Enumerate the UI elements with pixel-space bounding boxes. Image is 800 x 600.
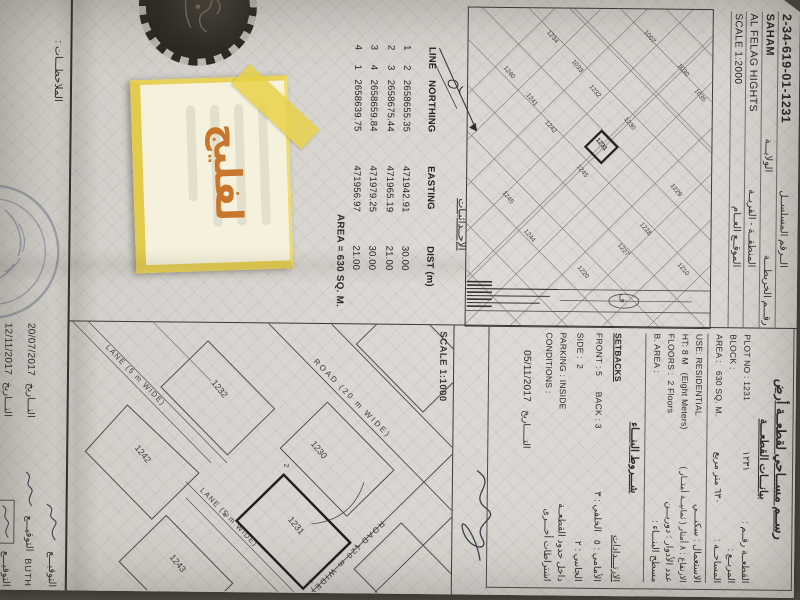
panel-subtitle-ar: بيانـــات القطعـــة bbox=[756, 335, 772, 584]
coord-cell: 471965.19 bbox=[380, 166, 397, 242]
panel-divider bbox=[705, 334, 709, 583]
coord-cell: 2658675.44 bbox=[381, 80, 398, 162]
drawing-scale: SCALE 1:1000 bbox=[437, 331, 449, 402]
use-en: USE: RESIDENTIAL bbox=[694, 334, 705, 416]
plot-no-en: PLOT NO : 1231 bbox=[742, 334, 753, 401]
plan-plot-number: 1230 bbox=[622, 116, 637, 132]
date-label-ar: التـــاريخ bbox=[25, 383, 36, 418]
side-ar: الجانبي : ٢ bbox=[572, 541, 583, 582]
plan-plot-number: 1232 bbox=[588, 84, 603, 100]
row-floors: FLOORS : 2 Floors عدد الأدوار : دوريـــن bbox=[663, 334, 677, 583]
plan-plot-number: 1007 bbox=[642, 29, 657, 45]
road-label: ROAD (20 m WIDE) bbox=[308, 519, 386, 593]
area-ar-label: المساحــة : bbox=[711, 539, 722, 583]
signature-date: 20/07/2017 bbox=[25, 323, 37, 376]
plan-plot-number: 1035 bbox=[692, 88, 707, 104]
plot-drawing-box: 1 2 3 4 SCALE 1:1000 ROAD (20 m WIDE) RO… bbox=[66, 321, 455, 594]
signature-scribble bbox=[0, 503, 13, 541]
stamp-box bbox=[0, 500, 15, 544]
note-showthrough-bar bbox=[186, 105, 198, 201]
vertex-number: 2 bbox=[282, 464, 289, 468]
coord-cell: 4 bbox=[365, 59, 382, 75]
building-area-ar: مسطح البنـــاء : bbox=[649, 520, 661, 583]
seal-calligraphy bbox=[138, 0, 257, 66]
floors-ar: عدد الأدوار : دوريـــن bbox=[663, 501, 675, 582]
plan-plot-number: 1220 bbox=[576, 265, 591, 281]
drawing-plot-number: 1232 bbox=[209, 378, 229, 400]
plan-plot-number: 1228 bbox=[638, 221, 653, 237]
plan-plot-number: 1241 bbox=[524, 92, 539, 108]
plan-plot-number: 1245 bbox=[500, 190, 515, 206]
coord-cell: 2 bbox=[382, 40, 399, 56]
plan-plot-number: 1229 bbox=[668, 182, 683, 198]
plan-scale-value: SCALE 1:2000 bbox=[732, 13, 744, 84]
panel-title-ar: رســم مســاحي لقطعــة أرض bbox=[771, 335, 790, 584]
side-en: SIDE : 2 bbox=[575, 333, 585, 369]
row-height: HT: 8 M (Eight Meters) الارتفاع : ٨ أمتا… bbox=[677, 334, 691, 583]
col-northing: NORTHING bbox=[422, 80, 439, 162]
row-front-back: FRONT : 5 BACK : 3 الأمامي : ٥ الخلفي : … bbox=[591, 333, 605, 582]
conditions-ar: اشتراطات أخـــرى bbox=[541, 508, 553, 581]
row-conditions: CONDITIONS : اشتراطات أخـــرى bbox=[541, 332, 555, 581]
general-location-label-ar: الموقــع العــام bbox=[730, 206, 742, 325]
block-ar: المربــع : bbox=[725, 548, 736, 583]
row-side: SIDE : 2 الجانبي : ٢ bbox=[572, 333, 586, 582]
sticky-note: لفليج bbox=[130, 75, 293, 273]
header-table: 2-34-619-01-1231 الــرقم المسلســل SAHAM… bbox=[728, 11, 796, 328]
plan-plot-number: 1033 bbox=[570, 58, 585, 74]
setbacks-en: SETBACKS bbox=[613, 333, 624, 382]
survey-date: 05/11/2017 bbox=[521, 350, 533, 402]
floors-en: FLOORS : 2 Floors bbox=[666, 334, 677, 414]
signature-row-2: 20/07/2017 التـــاريخ التوقيـــع BUTH bbox=[17, 323, 43, 587]
drawing-plot-number: 1230 bbox=[309, 439, 329, 461]
paper-crease bbox=[0, 248, 470, 284]
ministry-seal-icon bbox=[138, 0, 257, 66]
row-block: BLOCK : المربــع : bbox=[725, 334, 739, 583]
header-row-area: AL FELAG HIGHTS المنطقــة - القريــة bbox=[743, 11, 762, 327]
coord-cell: 2658659.84 bbox=[364, 79, 381, 161]
plan-plot-number: 1240 bbox=[502, 65, 517, 81]
plot-data-panel: رســم مســاحي لقطعــة أرض بيانـــات القط… bbox=[486, 326, 795, 591]
signature-row-3: 12/11/2017 التـــاريخ التوقيـــع bbox=[0, 323, 20, 587]
area-ar-value: ٦٣٠ متر مربع bbox=[712, 452, 724, 504]
row-plot-no: PLOT NO : 1231 ١٢٣١ القطعــة رقــم : bbox=[739, 334, 753, 583]
front-back-en: FRONT : 5 BACK : 3 bbox=[593, 333, 604, 429]
plot-no-ar-label: القطعــة رقــم : bbox=[739, 521, 751, 583]
serial-number: 2-34-619-01-1231 bbox=[779, 14, 794, 124]
lane-label: LANE (5 m WIDE) bbox=[104, 343, 168, 408]
wilaya-value: SAHAM bbox=[763, 14, 775, 56]
approval-signature bbox=[454, 464, 507, 577]
plot-no-ar-value: ١٢٣١ bbox=[740, 451, 751, 472]
location-plan-box: ف 1035 1030 1210 1007 1229 1228 1227 103… bbox=[465, 7, 714, 330]
plan-plot-number: 1227 bbox=[616, 242, 631, 258]
panel-divider bbox=[643, 333, 647, 582]
drawing-plot-number: 1243 bbox=[168, 552, 188, 574]
plan-plot-number: 1245 bbox=[575, 163, 590, 179]
coord-cell: 4 bbox=[349, 39, 366, 55]
conditions-en: CONDITIONS : bbox=[544, 332, 555, 393]
north-arrow-sketch bbox=[431, 42, 487, 143]
signature-scribble bbox=[20, 468, 38, 508]
height-ar: الارتفاع : ٨ أمتار ( ثمانيــة أمتــار ) bbox=[677, 466, 689, 583]
vertex-number: 4 bbox=[306, 580, 313, 584]
coord-cell: 471942.91 bbox=[396, 166, 413, 242]
row-use: USE: RESIDENTIAL الاستعمال : سكنـــي bbox=[691, 334, 705, 583]
row-date: 05/11/2017 التـــــاريخ bbox=[519, 332, 533, 581]
wilaya-label-ar: الولايـــة bbox=[762, 139, 773, 173]
road-circle-letter: ف bbox=[618, 293, 628, 302]
coord-cell: 471979.25 bbox=[363, 165, 380, 241]
document-photo: 2-34-619-01-1231 الــرقم المسلســل SAHAM… bbox=[0, 0, 800, 600]
paper-crease bbox=[55, 0, 99, 600]
block-en: BLOCK : bbox=[728, 334, 738, 369]
sticky-note-text: لفليج bbox=[203, 82, 252, 263]
lane-label: LANE (5 m WIDE) bbox=[198, 486, 260, 549]
parking-en: PARKING : INSIDE bbox=[558, 332, 569, 409]
signature-date: 12/11/2017 bbox=[2, 323, 14, 375]
surveyor-name-partial: BUTH bbox=[23, 558, 33, 587]
map-number-label-ar: رقـــم الخريطـــة bbox=[761, 255, 773, 326]
front-back-ar: الأمامي : ٥ الخلفي : ٣ bbox=[591, 491, 603, 582]
plot-drawing: 1 2 3 4 SCALE 1:1000 ROAD (20 m WIDE) RO… bbox=[67, 321, 454, 593]
plan-plot-number: 1234 bbox=[545, 29, 560, 45]
location-plan-map: ف 1035 1030 1210 1007 1229 1228 1227 103… bbox=[466, 8, 713, 329]
coord-cell: 471956.97 bbox=[347, 165, 364, 241]
row-area: AREA : 630 SQ. M. ٦٣٠ متر مربع المساحــة… bbox=[711, 334, 725, 583]
note-showthrough-bar bbox=[258, 103, 271, 225]
date-label-ar: التـــــاريخ bbox=[520, 410, 531, 449]
row-parking: PARKING : INSIDE داخل حدود القطعــة bbox=[555, 332, 569, 581]
signature-label-ar: التوقيـــع bbox=[23, 515, 34, 551]
serial-label-ar: الــرقم المسلســل bbox=[777, 190, 789, 326]
building-conditions-heading-ar: شـــروط البنـــاء bbox=[627, 333, 642, 582]
area-name-value: AL FELAG HIGHTS bbox=[747, 13, 760, 112]
drawing-plot-number: 1231 bbox=[286, 515, 306, 537]
use-ar: الاستعمال : سكنـــي bbox=[691, 504, 703, 583]
setbacks-ar: الارتـــدادات bbox=[610, 535, 621, 582]
header-row-serial: 2-34-619-01-1231 الــرقم المسلســل bbox=[775, 12, 796, 328]
coord-cell: 1 bbox=[398, 40, 415, 56]
building-area-en: B. AREA : bbox=[652, 333, 662, 373]
drawing-plot-number: 1242 bbox=[133, 443, 153, 465]
col-line: LINE bbox=[423, 40, 440, 76]
coord-cell: 2658655.35 bbox=[397, 80, 414, 162]
area-name-label-ar: المنطقــة - القريــة bbox=[745, 189, 757, 326]
row-setbacks: SETBACKS الارتـــدادات bbox=[610, 333, 624, 582]
row-building-area: B. AREA : مسطح البنـــاء : bbox=[649, 333, 663, 582]
date-label-ar: التـــاريخ bbox=[2, 382, 13, 417]
coord-cell: 3 bbox=[365, 39, 382, 55]
header-row-wilaya: SAHAM الولايـــة رقـــم الخريطـــة bbox=[759, 12, 778, 328]
col-easting: EASTING bbox=[421, 166, 438, 242]
parking-ar: داخل حدود القطعــة bbox=[555, 503, 567, 581]
signature-label-ar: التوقيـــع bbox=[0, 551, 11, 587]
height-en: HT: 8 M (Eight Meters) bbox=[679, 334, 690, 430]
plan-plot-number: 1242 bbox=[543, 119, 558, 135]
coord-cell: 1 bbox=[349, 59, 366, 75]
survey-krooki-document: 2-34-619-01-1231 الــرقم المسلســل SAHAM… bbox=[0, 0, 800, 598]
coord-cell: 2658639.75 bbox=[348, 79, 365, 161]
coord-cell: 2 bbox=[398, 60, 415, 76]
coord-cell: 3 bbox=[382, 60, 399, 76]
area-en: AREA : 630 SQ. M. bbox=[714, 334, 725, 416]
